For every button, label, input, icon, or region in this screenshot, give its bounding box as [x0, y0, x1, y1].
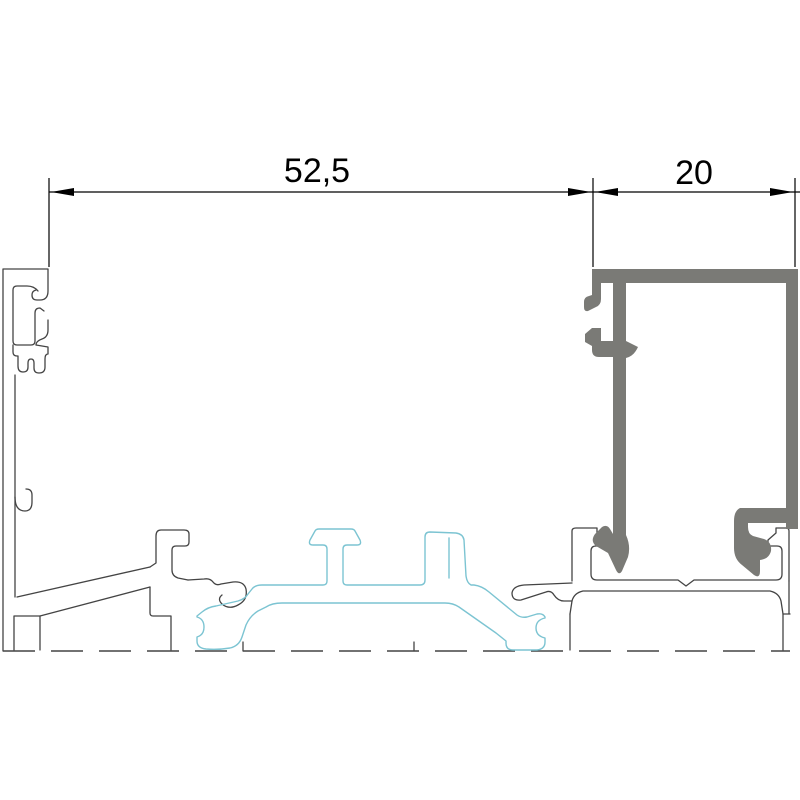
bead-leg-barb-left	[593, 500, 629, 573]
gasket-outline	[197, 529, 545, 650]
arrowhead-left-out	[51, 188, 74, 196]
bead-top-bar	[592, 269, 798, 283]
sill-slope-lower	[40, 587, 150, 616]
sill-inner-rib-left	[14, 616, 40, 650]
arrowhead-middle-right	[595, 188, 618, 196]
sill-dovetail-groove	[570, 591, 783, 614]
arrowhead-right-out	[770, 188, 793, 196]
bead-right-wall	[786, 283, 798, 529]
arrowhead-middle-left	[568, 188, 591, 196]
gasket-pocket-right	[512, 583, 572, 601]
bead-clip-lower-lip	[585, 328, 616, 357]
dimension-label-20: 20	[675, 154, 713, 192]
sill-profile	[3, 528, 790, 651]
frame-screw-channel	[13, 286, 44, 345]
dimension-label-52-5: 52,5	[284, 152, 350, 190]
frame-serrated-clip	[13, 345, 48, 373]
gasket-pocket-left	[188, 579, 246, 607]
sill-rib-ticks	[243, 642, 414, 651]
frame-outer-wall	[3, 269, 48, 651]
bead-inner-leg	[613, 283, 626, 508]
dimension-annotations: 52,5 20	[49, 152, 800, 267]
gasket-seal	[197, 529, 545, 650]
glazing-bead-profile	[584, 269, 798, 576]
sill-step-left	[150, 587, 171, 650]
bead-web-fillet	[626, 341, 638, 358]
profile-cross-section-drawing: 52,5 20	[0, 0, 800, 800]
frame-clip-lip	[36, 320, 48, 345]
bead-leg-barb-right	[734, 508, 786, 576]
frame-profile	[3, 269, 414, 651]
bead-clip-upper-lip	[584, 283, 601, 311]
cad-drawing-canvas: 52,5 20	[0, 0, 800, 800]
glazing-upstand	[150, 530, 189, 580]
frame-j-hook	[15, 489, 32, 511]
